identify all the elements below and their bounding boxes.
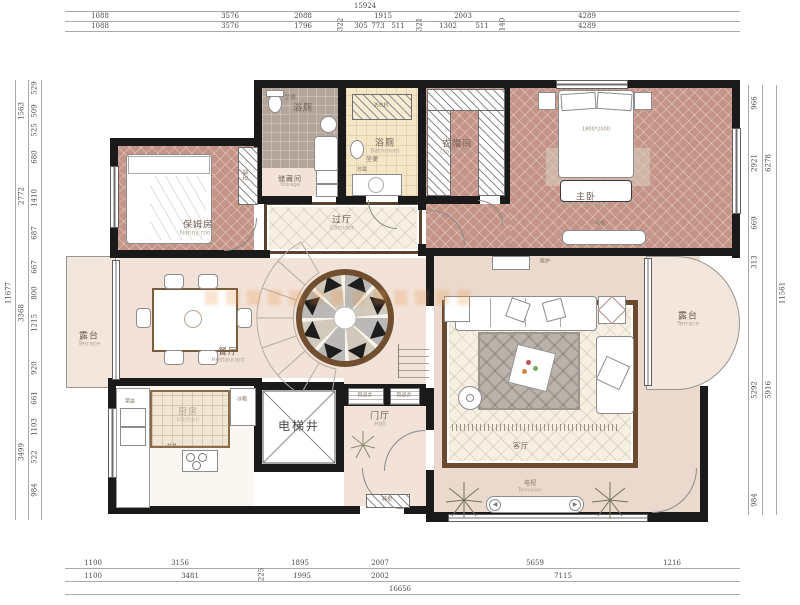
dim-label: 321 [417, 18, 424, 31]
dim-label: 2002 [371, 573, 389, 580]
room-label-en: Cloak room [440, 150, 474, 157]
dim-label: 3499 [19, 443, 26, 461]
dim-label: 225 [259, 568, 266, 581]
dim-label: 3481 [181, 573, 199, 580]
room-label-zh: 客厅 [513, 442, 529, 450]
wall [110, 378, 262, 386]
room-label-zh: 电梯井 [278, 420, 320, 434]
room-label-foyer: 门厅 Hall [370, 411, 390, 428]
dim-label: 1088 [91, 23, 109, 30]
sink-label: 菜盆 [125, 400, 135, 405]
dim-line [748, 85, 749, 515]
toilet-tank [266, 90, 284, 97]
dim-label: 669 [752, 216, 759, 229]
dim-label: 6278 [766, 154, 773, 172]
tv-label: 电视 [595, 222, 605, 227]
room-label-master: 主卧 Master bedroom [561, 192, 610, 209]
dim-label: 5916 [766, 381, 773, 399]
wardrobe [427, 89, 505, 111]
toilet [350, 140, 364, 159]
dim-label: 984 [752, 493, 759, 506]
dim-label: 140 [500, 18, 507, 31]
dim-label: 2007 [371, 560, 389, 567]
washer-label: 洗衣机 [373, 104, 388, 109]
dim-label: 2772 [19, 187, 26, 205]
room-label-elevator: 电梯井 [278, 420, 320, 434]
room-label-bath2: 浴厕 Bathroom [370, 138, 399, 155]
fridge [230, 388, 256, 426]
wall [398, 196, 426, 204]
dim-label: 1895 [291, 560, 309, 567]
dim-label: 3576 [221, 23, 239, 30]
nightstand [538, 92, 556, 110]
dim-label: 5292 [752, 381, 759, 399]
dim-label: 3576 [221, 13, 239, 20]
burner [198, 453, 207, 462]
sink-bowl [120, 427, 146, 446]
dim-label: 5659 [526, 560, 544, 567]
sink-bowl [120, 408, 146, 427]
kitchen-counter [116, 388, 150, 508]
room-label-en: Bathroom [288, 114, 317, 121]
dim-label: 529 [32, 81, 39, 94]
basin [368, 177, 384, 193]
dim-label: 1796 [294, 23, 312, 30]
mosaic-stair-graphic [252, 225, 442, 415]
wall [426, 196, 480, 204]
tv-label-en: Television [518, 489, 542, 494]
stairs-steps [398, 344, 429, 378]
arrow-right-icon: ▶ [569, 499, 581, 511]
fireplace-label: 壁炉 [540, 260, 550, 265]
dim-label: 1915 [374, 13, 392, 20]
wall [338, 80, 346, 202]
room-label-terrace-left: 露台 Terrace [78, 331, 100, 348]
dim-label: 1302 [439, 23, 457, 30]
dim-label: 800 [32, 286, 39, 299]
dim-line [65, 31, 740, 32]
wall [336, 196, 366, 204]
dim-label: 511 [391, 23, 404, 30]
dim-label: 15924 [354, 3, 376, 10]
dim-line [65, 11, 740, 12]
room-label-en: Terrace [78, 342, 100, 349]
dim-label: 4289 [578, 23, 596, 30]
watermark [205, 290, 470, 305]
dim-label: 1100 [84, 560, 102, 567]
shower [314, 136, 338, 172]
fridge-label: 冰箱 [237, 398, 247, 403]
wardrobe [478, 110, 505, 196]
dim-line [41, 80, 42, 520]
dim-label: 522 [32, 450, 39, 463]
room-label-kitchen: 厨房 Kitchen [177, 407, 200, 424]
flower-decor [522, 369, 527, 374]
room-label-en: Hall [370, 422, 390, 429]
wall [700, 386, 708, 522]
cabinet [316, 170, 338, 184]
bed-size-label: 1800*2000 [582, 128, 610, 133]
dim-label: 1215 [32, 314, 39, 332]
tv-cabinet [562, 230, 646, 245]
cabinet [316, 184, 338, 197]
room-label-en: Kitchen [177, 418, 200, 425]
basin [320, 116, 337, 133]
room-label-cloak: 衣帽间 Cloak room [440, 139, 474, 156]
dim-label: 2088 [294, 13, 312, 20]
shoe-cabinet-label: 鞋柜 [382, 498, 392, 503]
pipe-shaft-label: 管道井 [396, 394, 411, 399]
window [112, 260, 120, 380]
bed-pillow [560, 92, 596, 111]
dim-label: 680 [32, 150, 39, 163]
room-label-bath1: 浴厕 Bathroom [288, 103, 317, 120]
room-label-terrace-right: 露台 Terrace [677, 311, 699, 328]
elevator-wall [254, 464, 344, 472]
dim-label: 313 [752, 255, 759, 268]
dim-label: 984 [32, 483, 39, 496]
rug-fringe [452, 424, 620, 431]
pipe-shaft-label: 管道井 [357, 394, 372, 399]
sofa-seam [490, 298, 491, 327]
cooktop-label: 灶具 [167, 445, 177, 450]
window [732, 128, 741, 214]
terrace-left-floor [66, 256, 116, 388]
arrow-left-icon: ◀ [489, 499, 501, 511]
dim-label: 1995 [293, 573, 311, 580]
dining-chair [136, 308, 151, 328]
dim-label: 511 [475, 23, 488, 30]
wall [344, 506, 360, 514]
wall [424, 248, 740, 256]
dim-label: 3368 [19, 304, 26, 322]
room-label-nanny: 保姆房 Nanny room [180, 220, 217, 237]
dim-label: 11561 [780, 282, 787, 304]
dim-label: 661 [32, 391, 39, 404]
room-label-hallway: 过厅 Corridor [330, 215, 354, 232]
dim-line [28, 80, 29, 520]
dim-label: 509 [32, 104, 39, 117]
plant [444, 480, 484, 520]
wall [110, 138, 262, 146]
toilet-label: 坐便 [366, 157, 378, 163]
dim-label: 1216 [663, 560, 681, 567]
wardrobe-label: 衣柜 [244, 169, 250, 181]
dim-label: 305 [354, 23, 367, 30]
wall [418, 80, 426, 210]
dim-label: 687 [32, 226, 39, 239]
dim-label: 966 [752, 96, 759, 109]
dining-chair [237, 308, 252, 328]
toilet-label: 坐便 [284, 95, 296, 101]
room-label-living: 客厅 [513, 442, 529, 450]
room-label-en: Restaurant [212, 358, 245, 365]
dim-line [65, 568, 740, 569]
fireplace [492, 256, 530, 270]
room-label-en: Terrace [677, 322, 699, 329]
dim-label: 773 [371, 23, 384, 30]
dim-label: 1088 [91, 13, 109, 20]
dim-line [762, 85, 763, 515]
dim-label: 16656 [389, 586, 411, 593]
dim-line [776, 85, 777, 515]
dining-chair [164, 350, 184, 365]
room-label-en: Bathroom [370, 149, 399, 156]
wall [254, 196, 312, 204]
wall [254, 80, 740, 88]
nightstand [634, 92, 652, 110]
dim-label: 11677 [6, 282, 13, 304]
room-label-en: Storage [278, 183, 302, 189]
room-label-dining: 餐厅 Restaurant [212, 347, 245, 364]
floor-plan: 15924 1088 3576 2088 1915 2003 4289 1088… [0, 0, 800, 605]
dim-label: 1103 [32, 418, 39, 436]
dining-chair [164, 274, 184, 289]
burner [192, 461, 201, 470]
dim-label: 920 [32, 361, 39, 374]
bed-pillow [596, 92, 632, 111]
flower-decor [526, 360, 531, 365]
dim-label: 4289 [578, 13, 596, 20]
tv-label: 电视 [524, 481, 536, 487]
flower-decor [533, 366, 538, 371]
plant [590, 480, 630, 520]
dining-centerpiece [184, 310, 202, 328]
dim-label: 667 [32, 260, 39, 273]
dim-label: 525 [32, 123, 39, 136]
dim-label: 7115 [554, 573, 572, 580]
room-label-en: Nanny room [180, 231, 217, 238]
dim-line [65, 594, 740, 595]
room-label-en: Corridor [330, 226, 354, 233]
dim-label: 2003 [454, 13, 472, 20]
dim-label: 1410 [32, 189, 39, 207]
room-label-en: Master bedroom [561, 203, 610, 210]
dining-chair [198, 274, 218, 289]
dim-label: 2921 [752, 154, 759, 172]
dim-label: 1100 [84, 573, 102, 580]
wall [500, 196, 510, 204]
room-label-storage: 储藏间 Storage [278, 175, 302, 189]
dim-label: 3156 [171, 560, 189, 567]
window [556, 80, 628, 89]
dim-line [65, 581, 740, 582]
wall [110, 250, 270, 258]
dim-label: 322 [338, 18, 345, 31]
floor-lamp-center [466, 394, 474, 402]
bed-pillows [128, 156, 210, 174]
window [110, 166, 119, 228]
window [644, 258, 652, 386]
basin-label: 台盆 [357, 168, 367, 173]
dim-label: 1563 [19, 102, 26, 120]
foyer-plant [348, 428, 378, 462]
dim-line [15, 80, 16, 520]
